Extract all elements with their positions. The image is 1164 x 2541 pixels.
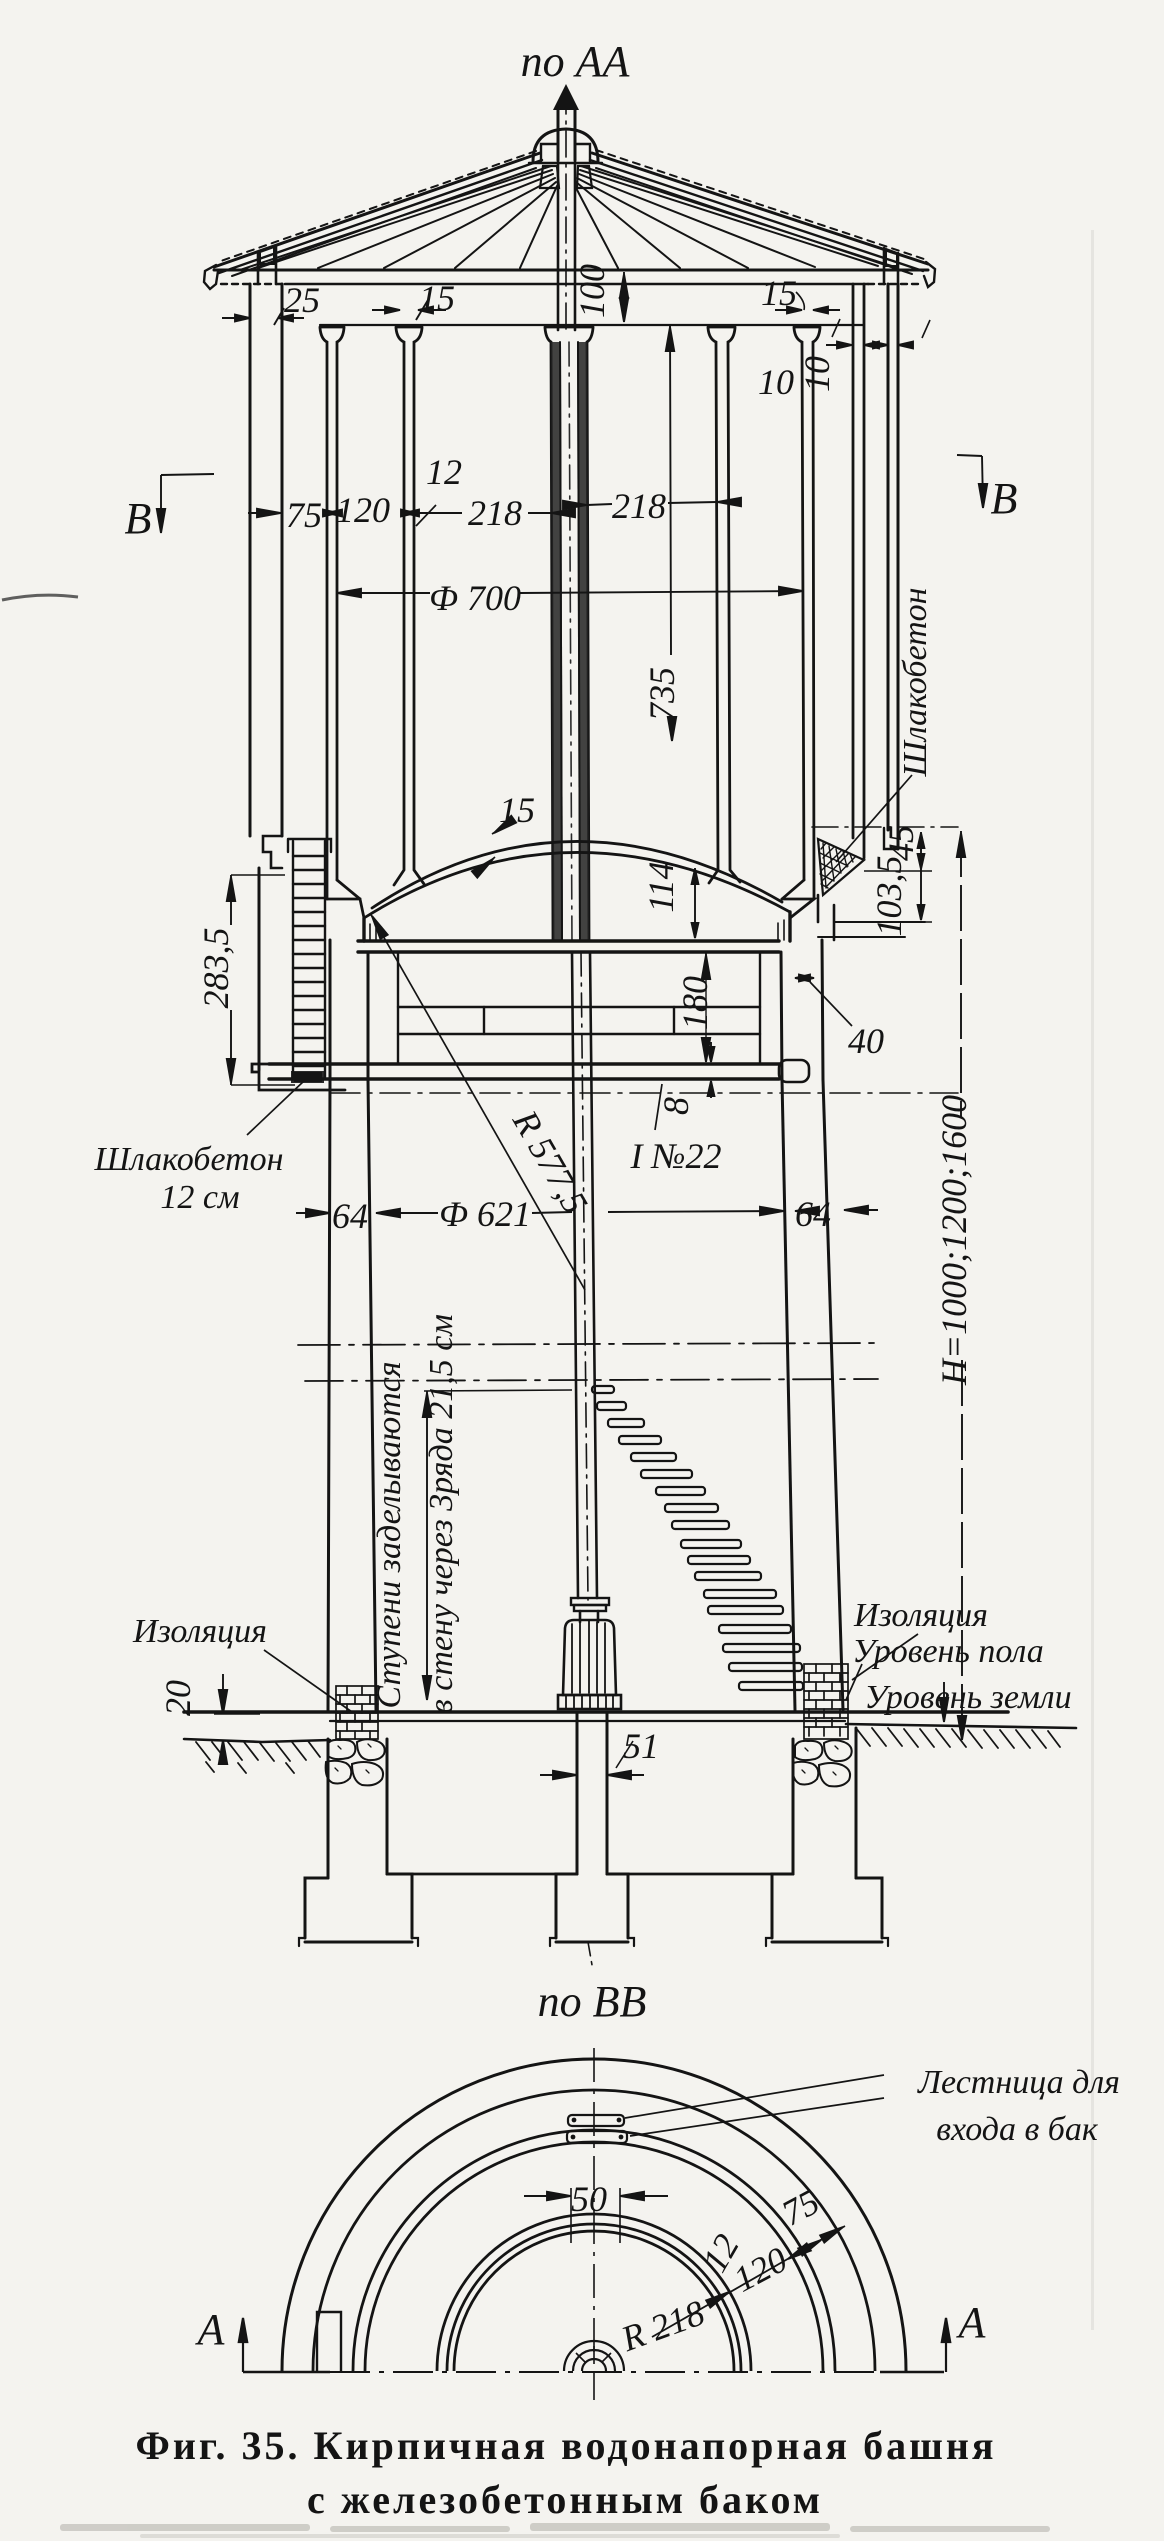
svg-text:в стену через 3ряда 21,5 см: в стену через 3ряда 21,5 см xyxy=(423,1314,460,1714)
svg-text:64: 64 xyxy=(795,1194,831,1234)
svg-text:Ф 621: Ф 621 xyxy=(439,1194,531,1234)
svg-text:180: 180 xyxy=(675,976,715,1030)
svg-text:8: 8 xyxy=(656,1097,696,1115)
svg-text:Уровень пола: Уровень пола xyxy=(852,1633,1044,1670)
svg-text:100: 100 xyxy=(572,264,612,318)
svg-text:Н=1000;1200;1600: Н=1000;1200;1600 xyxy=(934,1095,974,1386)
svg-text:15: 15 xyxy=(761,273,797,313)
svg-text:735: 735 xyxy=(642,667,682,721)
svg-text:10: 10 xyxy=(758,362,794,402)
svg-text:Лестница для: Лестница для xyxy=(917,2064,1120,2101)
svg-text:120: 120 xyxy=(336,490,390,530)
svg-text:15: 15 xyxy=(499,790,535,830)
svg-text:103,5: 103,5 xyxy=(869,856,909,937)
svg-text:Фиг. 35. Кирпичная водонапорна: Фиг. 35. Кирпичная водонапорная башня xyxy=(135,2423,996,2468)
svg-text:51: 51 xyxy=(623,1726,659,1766)
svg-text:12 см: 12 см xyxy=(160,1179,239,1216)
svg-text:Шлакобетон: Шлакобетон xyxy=(93,1141,283,1178)
svg-text:Ф 700: Ф 700 xyxy=(429,578,521,618)
svg-text:Ступени заделываются: Ступени заделываются xyxy=(371,1361,408,1708)
svg-text:Изоляция: Изоляция xyxy=(853,1597,988,1634)
svg-text:10: 10 xyxy=(797,356,837,392)
svg-text:входа в бак: входа в бак xyxy=(936,2111,1099,2148)
svg-text:40: 40 xyxy=(848,1021,884,1061)
svg-text:по АА: по АА xyxy=(521,37,631,86)
svg-text:с железобетонным баком: с железобетонным баком xyxy=(307,2477,823,2522)
svg-text:114: 114 xyxy=(641,861,681,912)
svg-text:Уровень земли: Уровень земли xyxy=(864,1679,1071,1716)
svg-text:283,5: 283,5 xyxy=(196,928,236,1009)
svg-text:12: 12 xyxy=(426,452,462,492)
svg-text:Изоляция: Изоляция xyxy=(132,1613,267,1650)
svg-text:по ВВ: по ВВ xyxy=(538,1977,647,2026)
svg-text:А: А xyxy=(195,2305,226,2354)
svg-text:64: 64 xyxy=(332,1196,368,1236)
svg-text:В: В xyxy=(991,474,1018,523)
svg-text:В: В xyxy=(125,494,152,543)
svg-text:20: 20 xyxy=(158,1680,198,1716)
svg-text:218: 218 xyxy=(468,493,522,533)
svg-text:50: 50 xyxy=(571,2179,607,2219)
svg-text:75: 75 xyxy=(286,495,322,535)
svg-text:Шлакобетон: Шлакобетон xyxy=(897,587,934,777)
svg-text:А: А xyxy=(956,2298,987,2347)
svg-text:15: 15 xyxy=(419,278,455,318)
svg-text:25: 25 xyxy=(284,280,320,320)
svg-text:I №22: I №22 xyxy=(630,1136,722,1176)
svg-text:218: 218 xyxy=(612,486,666,526)
